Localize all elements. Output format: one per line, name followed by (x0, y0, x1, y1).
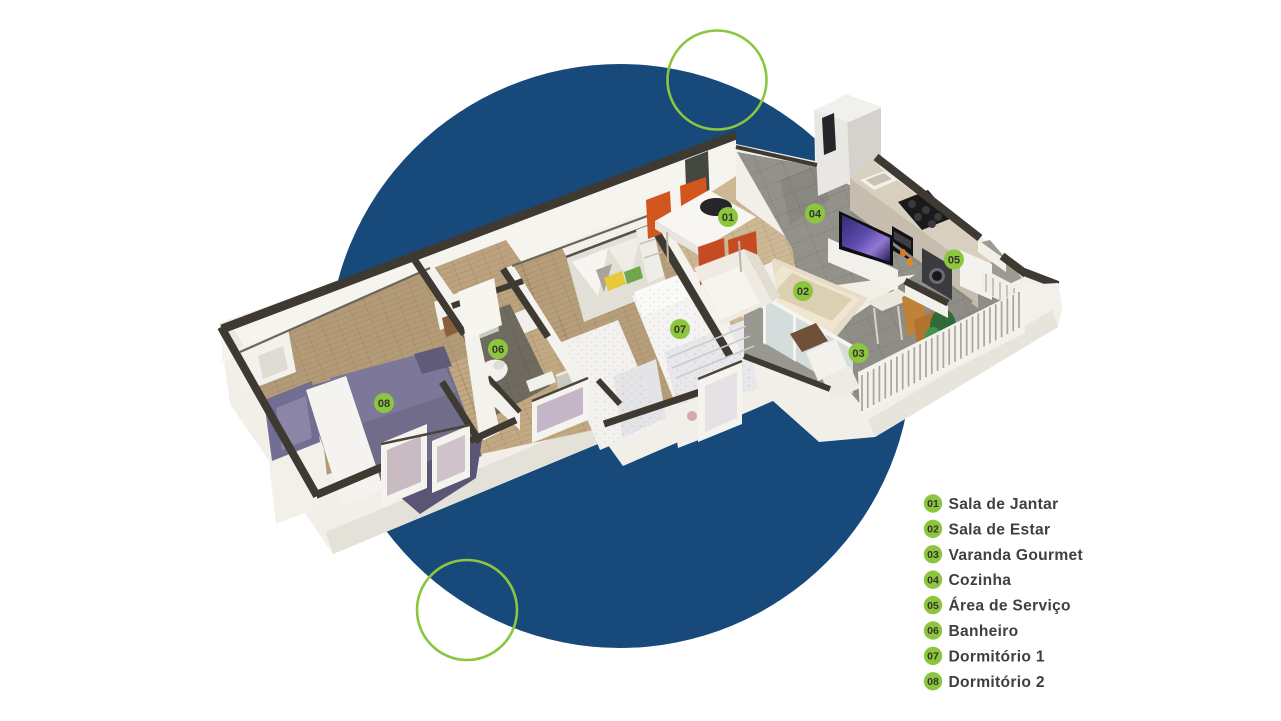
svg-text:04: 04 (927, 574, 939, 586)
svg-text:07: 07 (927, 651, 939, 663)
svg-text:Cozinha: Cozinha (949, 572, 1012, 589)
svg-text:02: 02 (927, 524, 939, 536)
svg-text:07: 07 (674, 324, 686, 336)
svg-text:Varanda Gourmet: Varanda Gourmet (949, 547, 1084, 564)
svg-text:01: 01 (722, 212, 734, 224)
svg-text:Sala de Jantar: Sala de Jantar (949, 496, 1059, 513)
svg-text:06: 06 (927, 625, 939, 637)
svg-text:Área de Serviço: Área de Serviço (949, 596, 1071, 615)
svg-text:Dormitório 1: Dormitório 1 (949, 648, 1045, 665)
svg-text:02: 02 (797, 286, 809, 298)
svg-text:Dormitório 2: Dormitório 2 (949, 674, 1045, 691)
svg-text:Banheiro: Banheiro (949, 623, 1019, 640)
svg-text:05: 05 (927, 600, 939, 612)
svg-text:03: 03 (852, 348, 864, 360)
svg-text:08: 08 (378, 398, 390, 410)
svg-text:Sala de Estar: Sala de Estar (949, 521, 1051, 538)
svg-text:03: 03 (927, 549, 939, 561)
svg-text:01: 01 (927, 498, 939, 510)
svg-text:06: 06 (492, 344, 504, 356)
svg-text:05: 05 (948, 255, 960, 267)
svg-text:04: 04 (809, 209, 822, 221)
svg-text:08: 08 (927, 676, 939, 688)
